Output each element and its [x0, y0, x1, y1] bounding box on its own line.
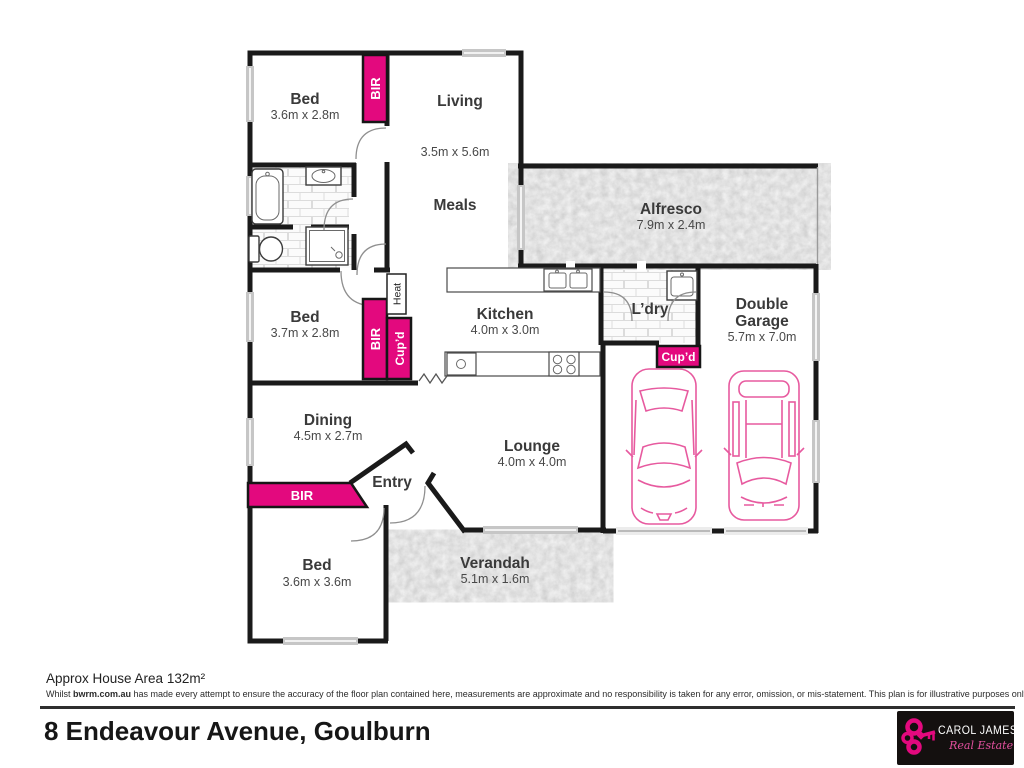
room-dims-verandah: 5.1m x 1.6m	[461, 572, 530, 586]
bir2-label: BIR	[368, 327, 383, 350]
agency-name: CAROL JAMES	[938, 725, 1017, 737]
bathtub-icon	[252, 169, 283, 224]
disclaimer-prefix: Whilst	[46, 689, 73, 699]
cupd1-label: Cup’d	[393, 332, 407, 366]
stove-icon	[549, 352, 579, 376]
room-label-garage-2: Garage	[735, 313, 789, 330]
cupd2-label: Cup’d	[662, 350, 696, 364]
room-dims-dining: 4.5m x 2.7m	[294, 429, 363, 443]
room-label-bed3: Bed	[302, 557, 331, 574]
room-dims-alfresco: 7.9m x 2.4m	[637, 218, 706, 232]
disclaimer-rest: has made every attempt to ensure the acc…	[131, 689, 1024, 699]
property-address: 8 Endeavour Avenue, Goulburn	[44, 716, 431, 747]
car-icons	[626, 369, 804, 524]
room-label-laundry: L’dry	[631, 301, 668, 318]
room-label-garage-1: Double	[736, 296, 789, 313]
car-sedan-icon	[626, 369, 702, 524]
room-label-bed2: Bed	[290, 309, 319, 326]
agency-logo-text: CAROL JAMES Real Estate	[938, 725, 1024, 752]
floor-plan-drawing: BIR BIR Cup’d Heat Cup’d BIR	[0, 0, 1024, 665]
room-dims-bed2: 3.7m x 2.8m	[271, 326, 340, 340]
room-label-verandah: Verandah	[460, 555, 530, 572]
key-icon	[901, 716, 937, 760]
room-dims-living: 3.5m x 5.6m	[421, 145, 490, 159]
room-dims-bed1: 3.6m x 2.8m	[271, 108, 340, 122]
room-label-dining: Dining	[304, 412, 352, 429]
room-dims-kitchen: 4.0m x 3.0m	[471, 323, 540, 337]
vanity-sink-icon	[306, 167, 341, 185]
room-dims-lounge: 4.0m x 4.0m	[498, 455, 567, 469]
toilet-icon	[249, 236, 283, 262]
house-area-note: Approx House Area 132m²	[46, 671, 205, 686]
kitchen-sink-icon	[544, 269, 592, 291]
car-wagon-icon	[724, 371, 804, 520]
room-label-entry: Entry	[372, 474, 412, 491]
room-label-meals: Meals	[433, 197, 476, 214]
disclaimer-text: Whilst bwrm.com.au has made every attemp…	[46, 689, 1024, 699]
room-label-kitchen: Kitchen	[477, 306, 534, 323]
wall-break-squiggle	[419, 374, 447, 383]
shower-icon	[306, 227, 348, 265]
heat-label: Heat	[391, 283, 403, 305]
garage-door-openings	[616, 527, 808, 535]
bir1-label: BIR	[368, 77, 383, 100]
room-label-lounge: Lounge	[504, 438, 560, 455]
room-dims-bed3: 3.6m x 3.6m	[283, 575, 352, 589]
room-dims-garage: 5.7m x 7.0m	[728, 330, 797, 344]
room-label-living: Living	[437, 93, 483, 110]
room-label-bed1: Bed	[290, 91, 319, 108]
room-label-alfresco: Alfresco	[640, 201, 702, 218]
bir3-label: BIR	[291, 488, 314, 503]
footer-divider	[40, 706, 1015, 709]
laundry-tub-icon	[667, 271, 697, 300]
dishwasher-icon	[447, 353, 476, 375]
agency-tagline: Real Estate	[949, 739, 1013, 752]
floor-plan-page: BIR BIR Cup’d Heat Cup’d BIR	[0, 0, 1024, 768]
disclaimer-brand: bwrm.com.au	[73, 689, 131, 699]
agency-logo: CAROL JAMES Real Estate	[897, 711, 1014, 765]
